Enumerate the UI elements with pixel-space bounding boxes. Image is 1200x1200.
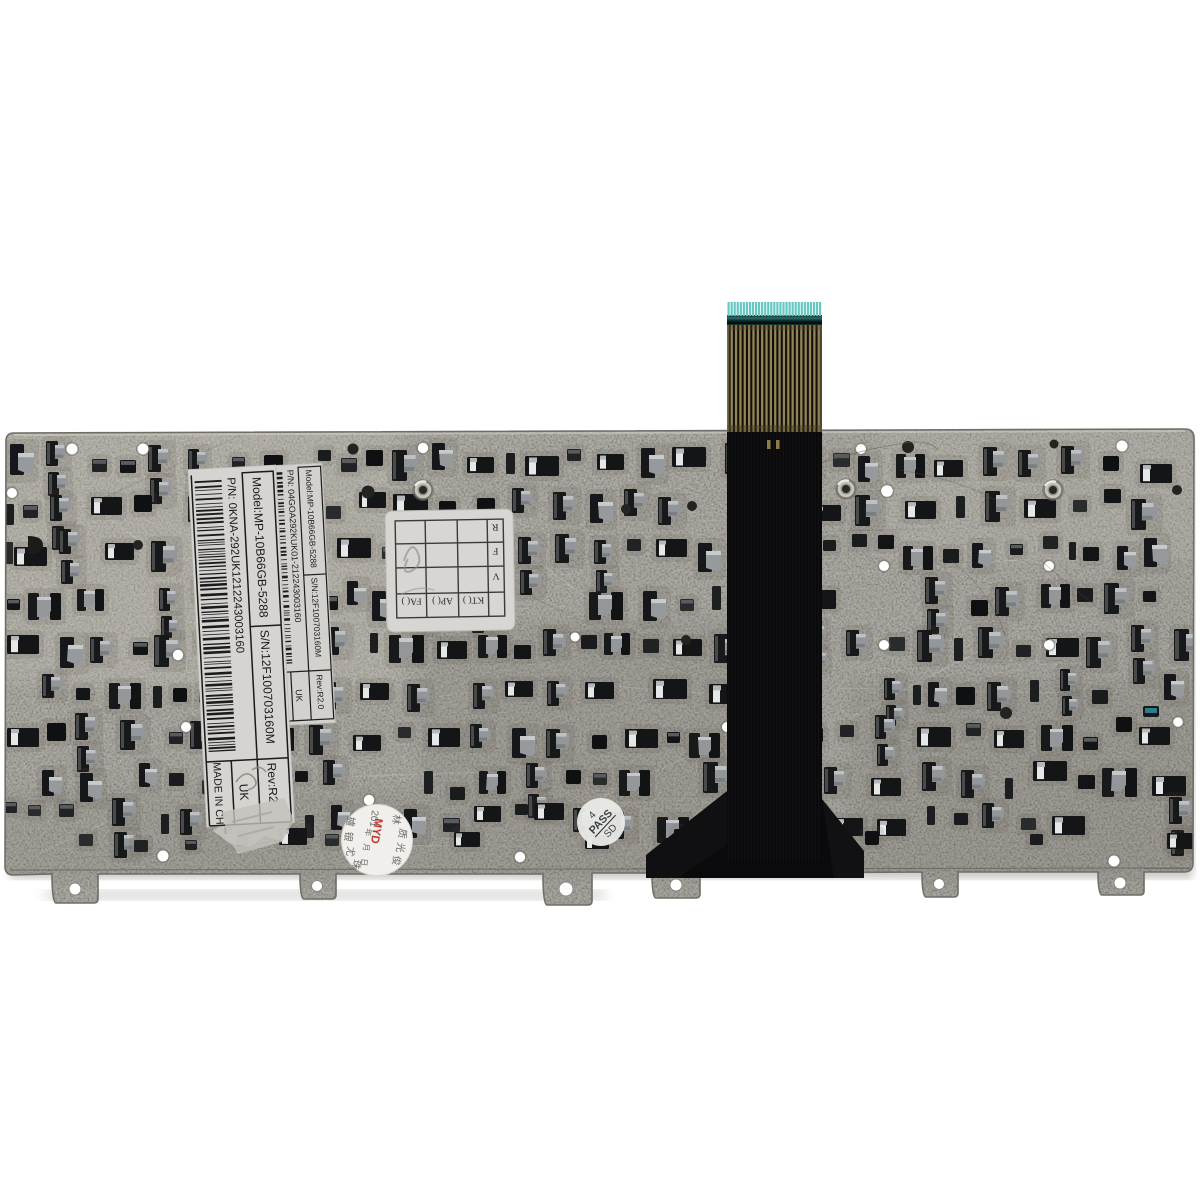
svg-text:日: 日: [359, 858, 369, 867]
svg-text:FA( ): FA( ): [401, 596, 421, 607]
svg-text:月: 月: [361, 843, 371, 852]
svg-text:Rev:R2.0: Rev:R2.0: [314, 674, 326, 710]
svg-text:AP( ): AP( ): [432, 595, 453, 606]
svg-text:KT( ): KT( ): [463, 594, 485, 605]
svg-text:Rev:R2: Rev:R2: [264, 762, 280, 803]
svg-text:R: R: [491, 521, 498, 532]
svg-text:UK: UK: [236, 783, 251, 800]
svg-text:UK: UK: [294, 689, 305, 702]
svg-text:F: F: [492, 545, 498, 556]
svg-text:V: V: [492, 570, 500, 581]
svg-text:质: 质: [395, 827, 409, 839]
